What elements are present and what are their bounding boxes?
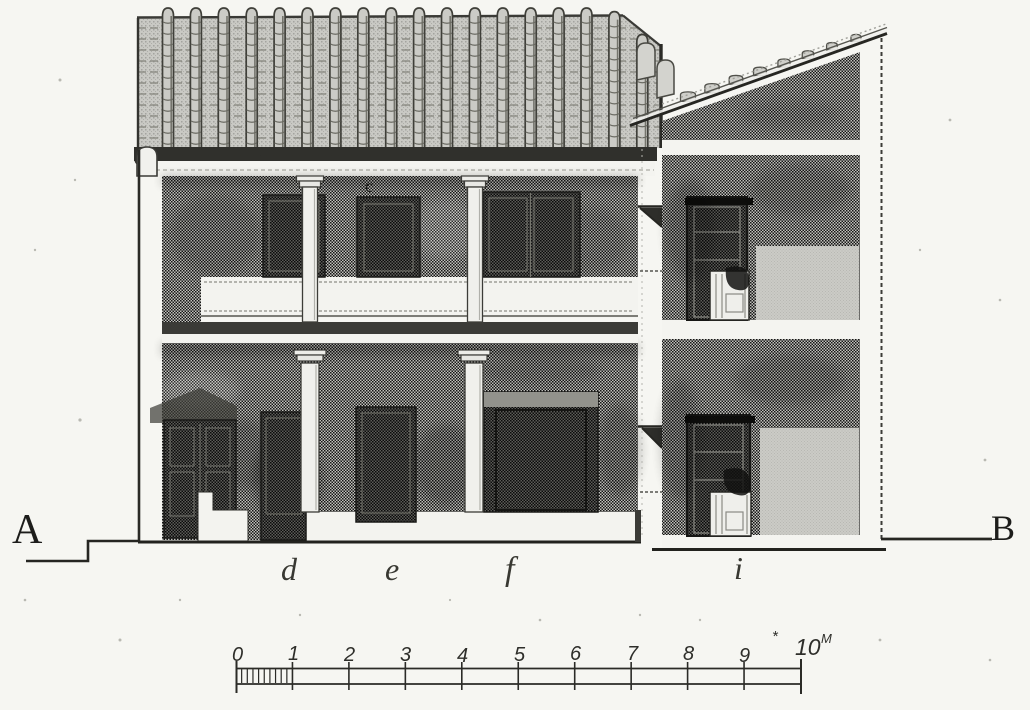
svg-text:6: 6 <box>570 643 582 665</box>
svg-text:4: 4 <box>457 645 468 667</box>
svg-text:9: 9 <box>739 645 750 667</box>
svg-text:A: A <box>12 507 43 553</box>
svg-text:c: c <box>365 176 373 196</box>
svg-text:5: 5 <box>514 644 526 666</box>
svg-text:8: 8 <box>683 643 694 665</box>
svg-text:B: B <box>991 508 1015 548</box>
svg-text:1: 1 <box>288 643 299 665</box>
svg-text:e: e <box>385 551 399 587</box>
svg-text:d: d <box>281 551 298 587</box>
svg-text:0: 0 <box>232 644 243 666</box>
svg-text:2: 2 <box>343 644 355 666</box>
svg-text:3: 3 <box>400 644 411 666</box>
svg-text:10: 10 <box>795 634 821 660</box>
svg-text:M: M <box>821 631 832 646</box>
svg-text:7: 7 <box>627 643 639 665</box>
svg-text:i: i <box>734 550 743 586</box>
